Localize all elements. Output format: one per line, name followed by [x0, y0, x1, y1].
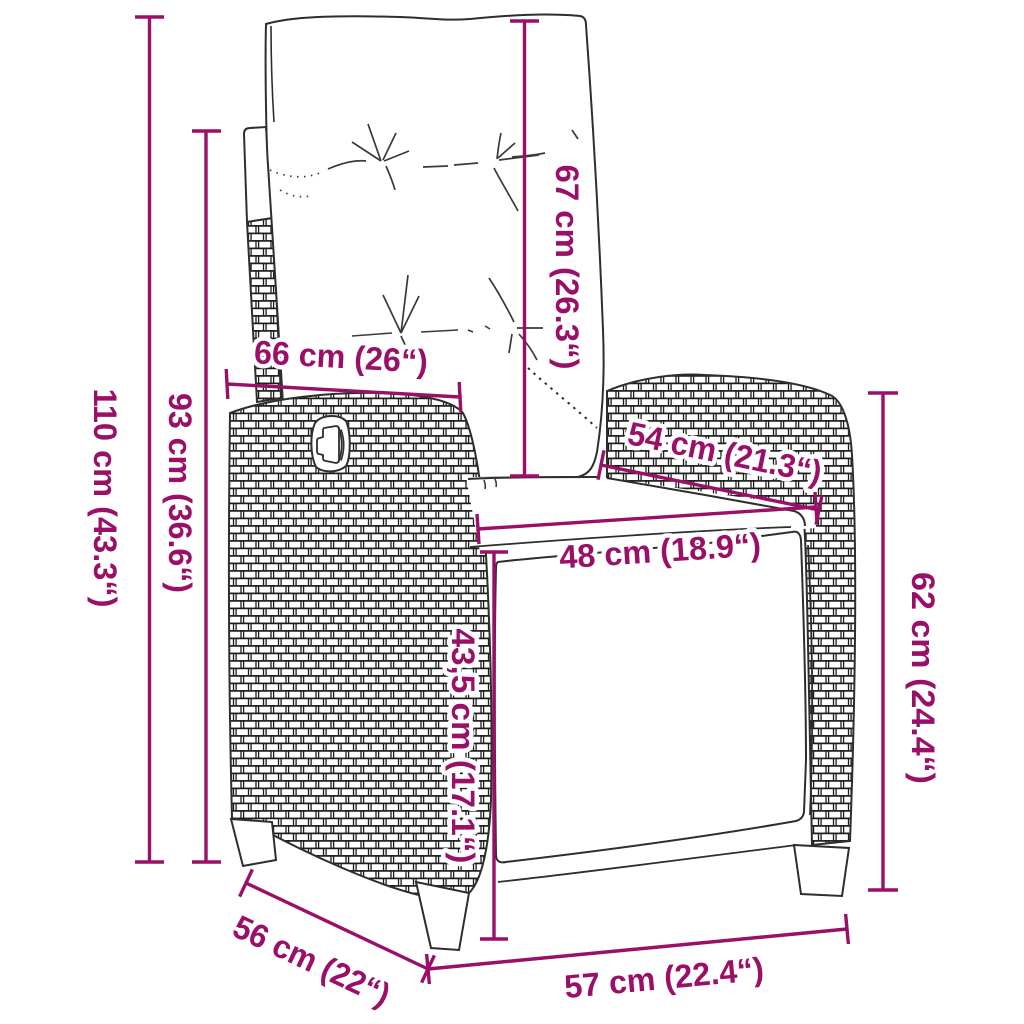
svg-text:93 cm (36.6“): 93 cm (36.6“)	[162, 393, 199, 593]
svg-text:110 cm (43.3“): 110 cm (43.3“)	[87, 389, 124, 608]
svg-text:43,5 cm (17.1“): 43,5 cm (17.1“)	[445, 629, 482, 864]
svg-text:62 cm (24.4“): 62 cm (24.4“)	[905, 572, 942, 784]
svg-text:67 cm (26.3“): 67 cm (26.3“)	[549, 165, 586, 370]
